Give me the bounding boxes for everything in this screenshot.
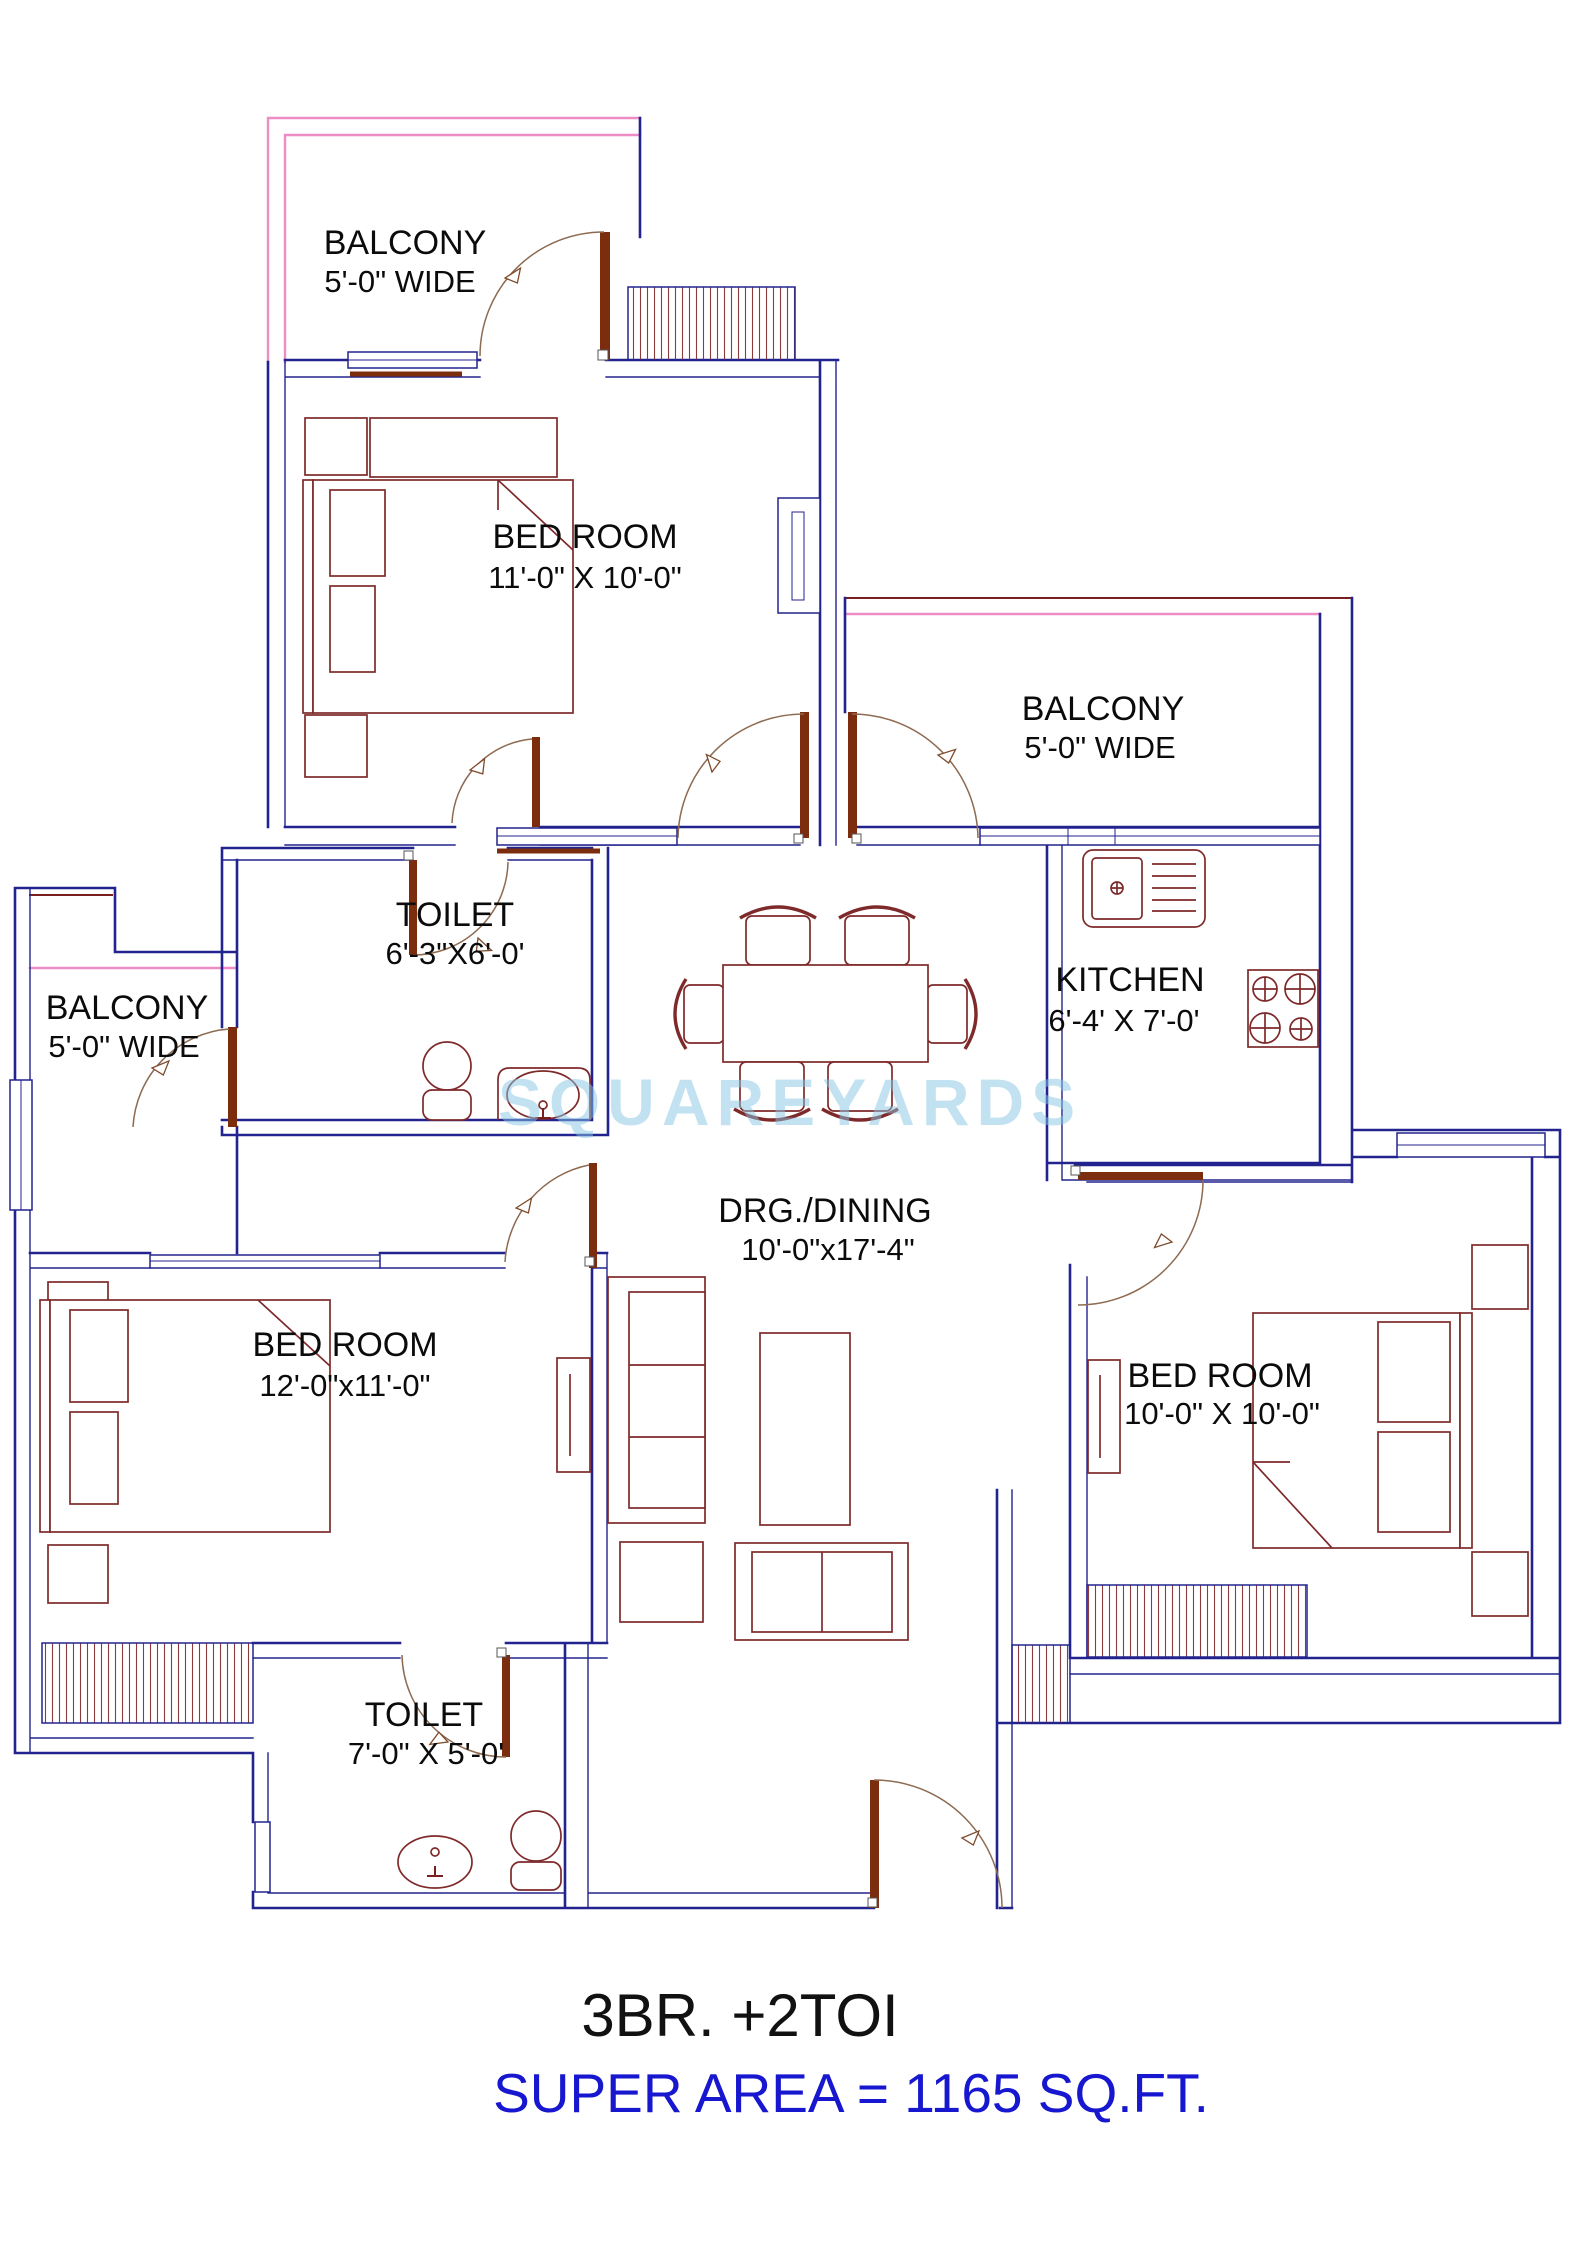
wardrobe-bedroom-left bbox=[42, 1643, 253, 1723]
pillow bbox=[1378, 1432, 1450, 1532]
door-swing-arrow bbox=[1151, 1232, 1172, 1253]
door-swing-arrow bbox=[938, 744, 959, 765]
tv-unit bbox=[557, 1358, 590, 1472]
bed-headboard bbox=[303, 480, 313, 713]
bed-headboard bbox=[1460, 1313, 1472, 1548]
label-toilet-bottom: TOILET bbox=[365, 1696, 483, 1734]
nightstand bbox=[305, 715, 367, 777]
nightstand bbox=[1472, 1245, 1528, 1309]
wardrobe-bedroom-right bbox=[1087, 1585, 1307, 1657]
nightstand bbox=[48, 1545, 108, 1603]
label-bedroom-top: BED ROOM bbox=[492, 518, 677, 556]
dim-drg-dining: 10'-0"x17'-4" bbox=[741, 1232, 914, 1267]
label-balcony-left: BALCONY bbox=[46, 989, 209, 1027]
label-toilet-mid: TOILET bbox=[396, 896, 514, 934]
dim-balcony-right: 5'-0" WIDE bbox=[1024, 730, 1175, 765]
dim-kitchen: 6'-4' X 7'-0' bbox=[1048, 1003, 1199, 1038]
toilet-bottom-fixtures bbox=[398, 1811, 561, 1890]
door-leaf-balcony-right-l bbox=[800, 712, 809, 838]
dim-balcony-tl: 5'-0" WIDE bbox=[324, 264, 475, 299]
door-leaf-bedroom-top bbox=[532, 737, 540, 827]
door-swing-arrow bbox=[516, 1194, 536, 1215]
watermark: SQUAREYARDS bbox=[498, 1065, 1082, 1139]
pillow bbox=[70, 1412, 118, 1504]
door-leaf-balcony-right-r bbox=[848, 712, 857, 838]
side-table bbox=[620, 1542, 703, 1622]
shaft-bottom bbox=[1012, 1645, 1070, 1723]
label-balcony-tl: BALCONY bbox=[324, 224, 487, 262]
window-toilet-bottom bbox=[255, 1822, 270, 1892]
pillow bbox=[330, 490, 385, 576]
dining-table bbox=[723, 965, 928, 1062]
label-balcony-right: BALCONY bbox=[1022, 690, 1185, 728]
washbasin bbox=[398, 1836, 472, 1888]
tv-unit bbox=[1088, 1360, 1120, 1473]
chair bbox=[845, 916, 909, 965]
label-bedroom-right: BED ROOM bbox=[1127, 1357, 1312, 1395]
dresser bbox=[370, 418, 557, 477]
bed-headboard bbox=[40, 1300, 50, 1532]
dim-bedroom-top: 11'-0" X 10'-0" bbox=[488, 560, 682, 595]
sofa-seat bbox=[629, 1292, 705, 1508]
chair bbox=[684, 985, 724, 1043]
nightstand bbox=[305, 418, 367, 475]
chair bbox=[927, 985, 967, 1043]
door-leaf-bedroom-right bbox=[1078, 1172, 1203, 1180]
door-swing-arrow bbox=[505, 264, 525, 285]
super-area: SUPER AREA = 1165 SQ.FT. bbox=[493, 2062, 1209, 2124]
dim-bedroom-right: 10'-0" X 10'-0" bbox=[1124, 1396, 1320, 1431]
window-bedroom-top bbox=[778, 498, 820, 613]
floor-plan-page: SQUAREYARDS BALCONY 5'-0" WIDE BED ROOM … bbox=[0, 0, 1587, 2245]
label-bedroom-left: BED ROOM bbox=[252, 1326, 437, 1364]
dim-balcony-left: 5'-0" WIDE bbox=[48, 1029, 199, 1064]
wc-seat bbox=[511, 1862, 561, 1890]
floor-plan-drawing: SQUAREYARDS BALCONY 5'-0" WIDE BED ROOM … bbox=[0, 0, 1587, 2245]
chair bbox=[746, 916, 810, 965]
coffee-table bbox=[760, 1333, 850, 1525]
nightstand bbox=[1472, 1552, 1528, 1616]
label-drg-dining: DRG./DINING bbox=[718, 1192, 931, 1230]
wc-seat bbox=[423, 1090, 471, 1120]
wc bbox=[423, 1042, 471, 1090]
furniture-living bbox=[557, 1277, 908, 1640]
furniture-bedroom-top bbox=[303, 418, 573, 777]
pillow bbox=[330, 586, 375, 672]
dim-toilet-bottom: 7'-0" X 5'-0' bbox=[348, 1736, 504, 1771]
shaft-top bbox=[628, 287, 795, 360]
door-leaf-main-entrance bbox=[870, 1780, 879, 1908]
dim-toilet-mid: 6'-3"X6'-0' bbox=[385, 936, 524, 971]
plan-title: 3BR. +2TOI bbox=[581, 1982, 898, 2049]
door-leaf-balcony-left bbox=[228, 1027, 237, 1127]
door-leaf-bedroom-left bbox=[589, 1163, 597, 1268]
pillow bbox=[70, 1310, 128, 1402]
stove bbox=[1248, 970, 1318, 1047]
pillow bbox=[1378, 1322, 1450, 1422]
dim-bedroom-left: 12'-0"x11'-0" bbox=[259, 1368, 430, 1403]
label-kitchen: KITCHEN bbox=[1055, 961, 1204, 999]
door-leaf-balcony-tl bbox=[600, 232, 610, 360]
wc bbox=[511, 1811, 561, 1861]
door-swing-arrow bbox=[470, 755, 490, 776]
